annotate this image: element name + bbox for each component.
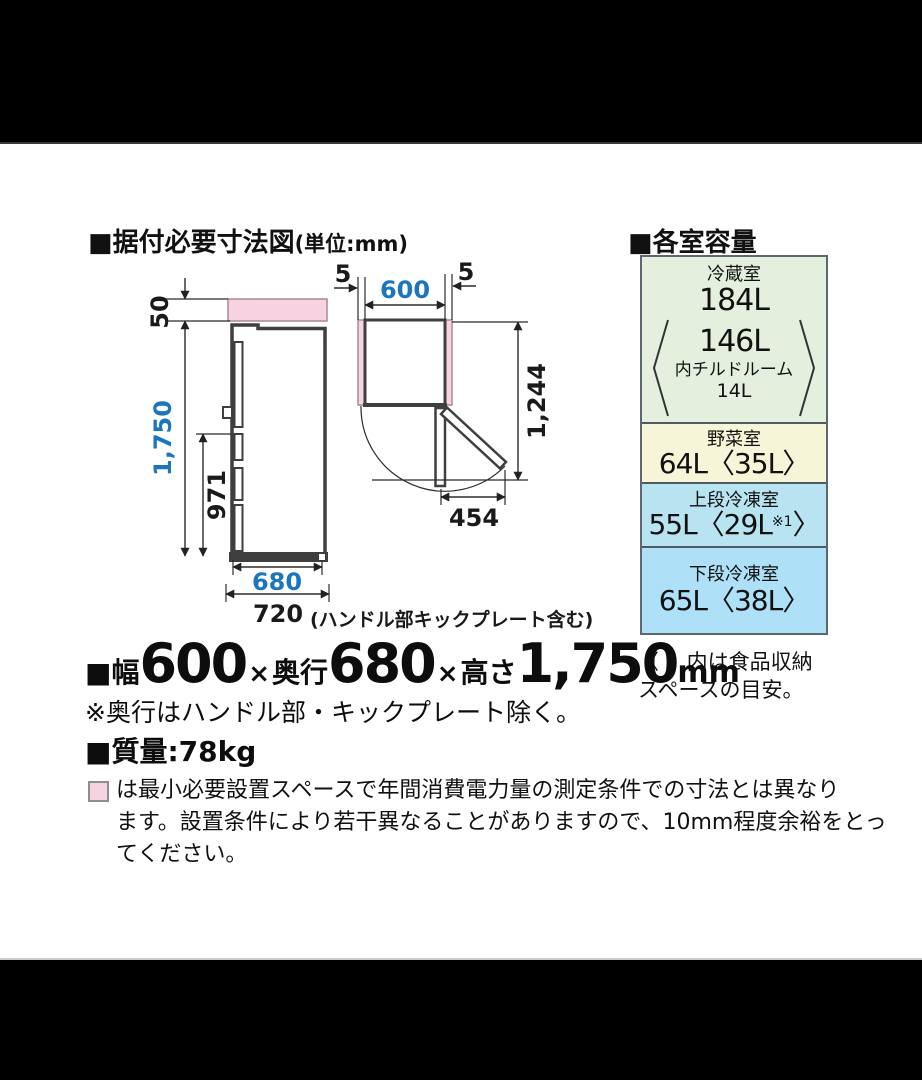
side-door-segment	[235, 468, 243, 500]
height-value: 1,750	[517, 632, 678, 695]
upper-freezer-capacity: 55L〈29L※1〉	[642, 510, 826, 541]
chilled-room-capacity: 14L	[642, 381, 826, 402]
vegetable-capacity: 64L〈35L〉	[642, 449, 826, 480]
screenshot-root: { "headings": { "install_title": "■据付必要寸…	[0, 0, 922, 1080]
dim-door-swing: 454	[444, 506, 504, 530]
dim-handle-height: 971	[205, 469, 229, 521]
capacity-section-vegetable: 野菜室 64L〈35L〉	[642, 422, 826, 482]
side-door-segment	[235, 434, 243, 460]
dim-depth-body: 680	[247, 570, 307, 594]
unit-mm: mm	[677, 655, 740, 690]
overall-dimensions-line: ■幅 600 × 奥行 680 × 高さ 1,750 mm	[85, 632, 740, 695]
side-cabinet-body	[232, 325, 325, 555]
lower-freezer-capacity: 65L〈38L〉	[642, 586, 826, 617]
depth-label: 奥行	[272, 651, 328, 691]
chilled-room-label: 内チルドルーム	[642, 361, 826, 380]
side-base-foot	[319, 554, 325, 560]
dim-depth-total: 720	[248, 602, 308, 626]
capacity-table: 冷蔵室 184L 146L 内チルドルーム 14L 野菜室 64L〈35L〉 上…	[640, 255, 828, 635]
capacity-section-lower-freezer: 下段冷凍室 65L〈38L〉	[642, 546, 826, 633]
legend-line2: ます。設置条件により若干異なることがありますので、10mm程度余裕をとっ	[116, 812, 887, 834]
fridge-top-view	[334, 274, 528, 505]
fridge-side-view	[155, 278, 329, 602]
times-sign: ×	[437, 659, 459, 689]
install-diagram-heading: ■据付必要寸法図 (単位:mm)	[88, 222, 408, 259]
dim-open-depth: 1,244	[524, 360, 550, 442]
dim-depth-total-note: (ハンドル部キックプレート含む)	[310, 605, 593, 632]
dim-top-clearance: 50	[148, 292, 172, 332]
legend-line1: は最小必要設置スペースで年間消費電力量の測定条件での寸法とは異なり	[116, 780, 839, 802]
dim-width: 600	[375, 278, 435, 302]
top-right-clearance-strip	[445, 320, 452, 405]
fridge-capacity: 184L	[642, 284, 826, 317]
height-label: 高さ	[461, 651, 517, 691]
footnote-marker: ※1	[772, 514, 793, 530]
fridge-name: 冷蔵室	[642, 265, 826, 285]
content-area: ■据付必要寸法図 (単位:mm) ■各室容量	[0, 142, 922, 960]
legend-swatch	[88, 781, 109, 802]
dim-side-clearance-left: 5	[330, 262, 356, 286]
capacity-heading: ■各室容量	[628, 222, 757, 259]
capacity-section-fridge: 冷蔵室 184L 146L 内チルドルーム 14L	[642, 257, 826, 422]
dim-side-clearance-right: 5	[453, 260, 479, 284]
width-value: 600	[139, 632, 246, 695]
legend-line3: てください。	[116, 844, 247, 866]
side-top-clearance-area	[228, 299, 327, 321]
fridge-inner-capacity: 146L	[642, 325, 826, 358]
side-handle-knob	[223, 407, 232, 418]
install-diagram-unit-label: (単位:mm)	[295, 228, 408, 258]
top-door-open-135	[441, 408, 506, 469]
times-sign: ×	[248, 659, 270, 689]
install-diagram-title: ■据付必要寸法図	[88, 222, 295, 259]
lower-freezer-name: 下段冷凍室	[642, 565, 826, 585]
side-door-segment	[235, 342, 243, 427]
weight-note: ■質量:78kg	[85, 730, 256, 770]
top-cabinet-body	[365, 320, 445, 405]
side-door-segment	[235, 505, 243, 551]
dim-height: 1,750	[151, 400, 175, 476]
width-prefix: ■幅	[85, 651, 139, 691]
side-kick-plate	[229, 552, 328, 562]
depth-note: ※奥行はハンドル部・キックプレート除く。	[85, 693, 581, 729]
door-swing-arc	[361, 406, 505, 491]
capacity-section-upper-freezer: 上段冷凍室 55L〈29L※1〉	[642, 482, 826, 546]
top-door-open-90	[436, 408, 446, 486]
depth-value: 680	[328, 632, 435, 695]
top-left-clearance-strip	[358, 320, 365, 405]
